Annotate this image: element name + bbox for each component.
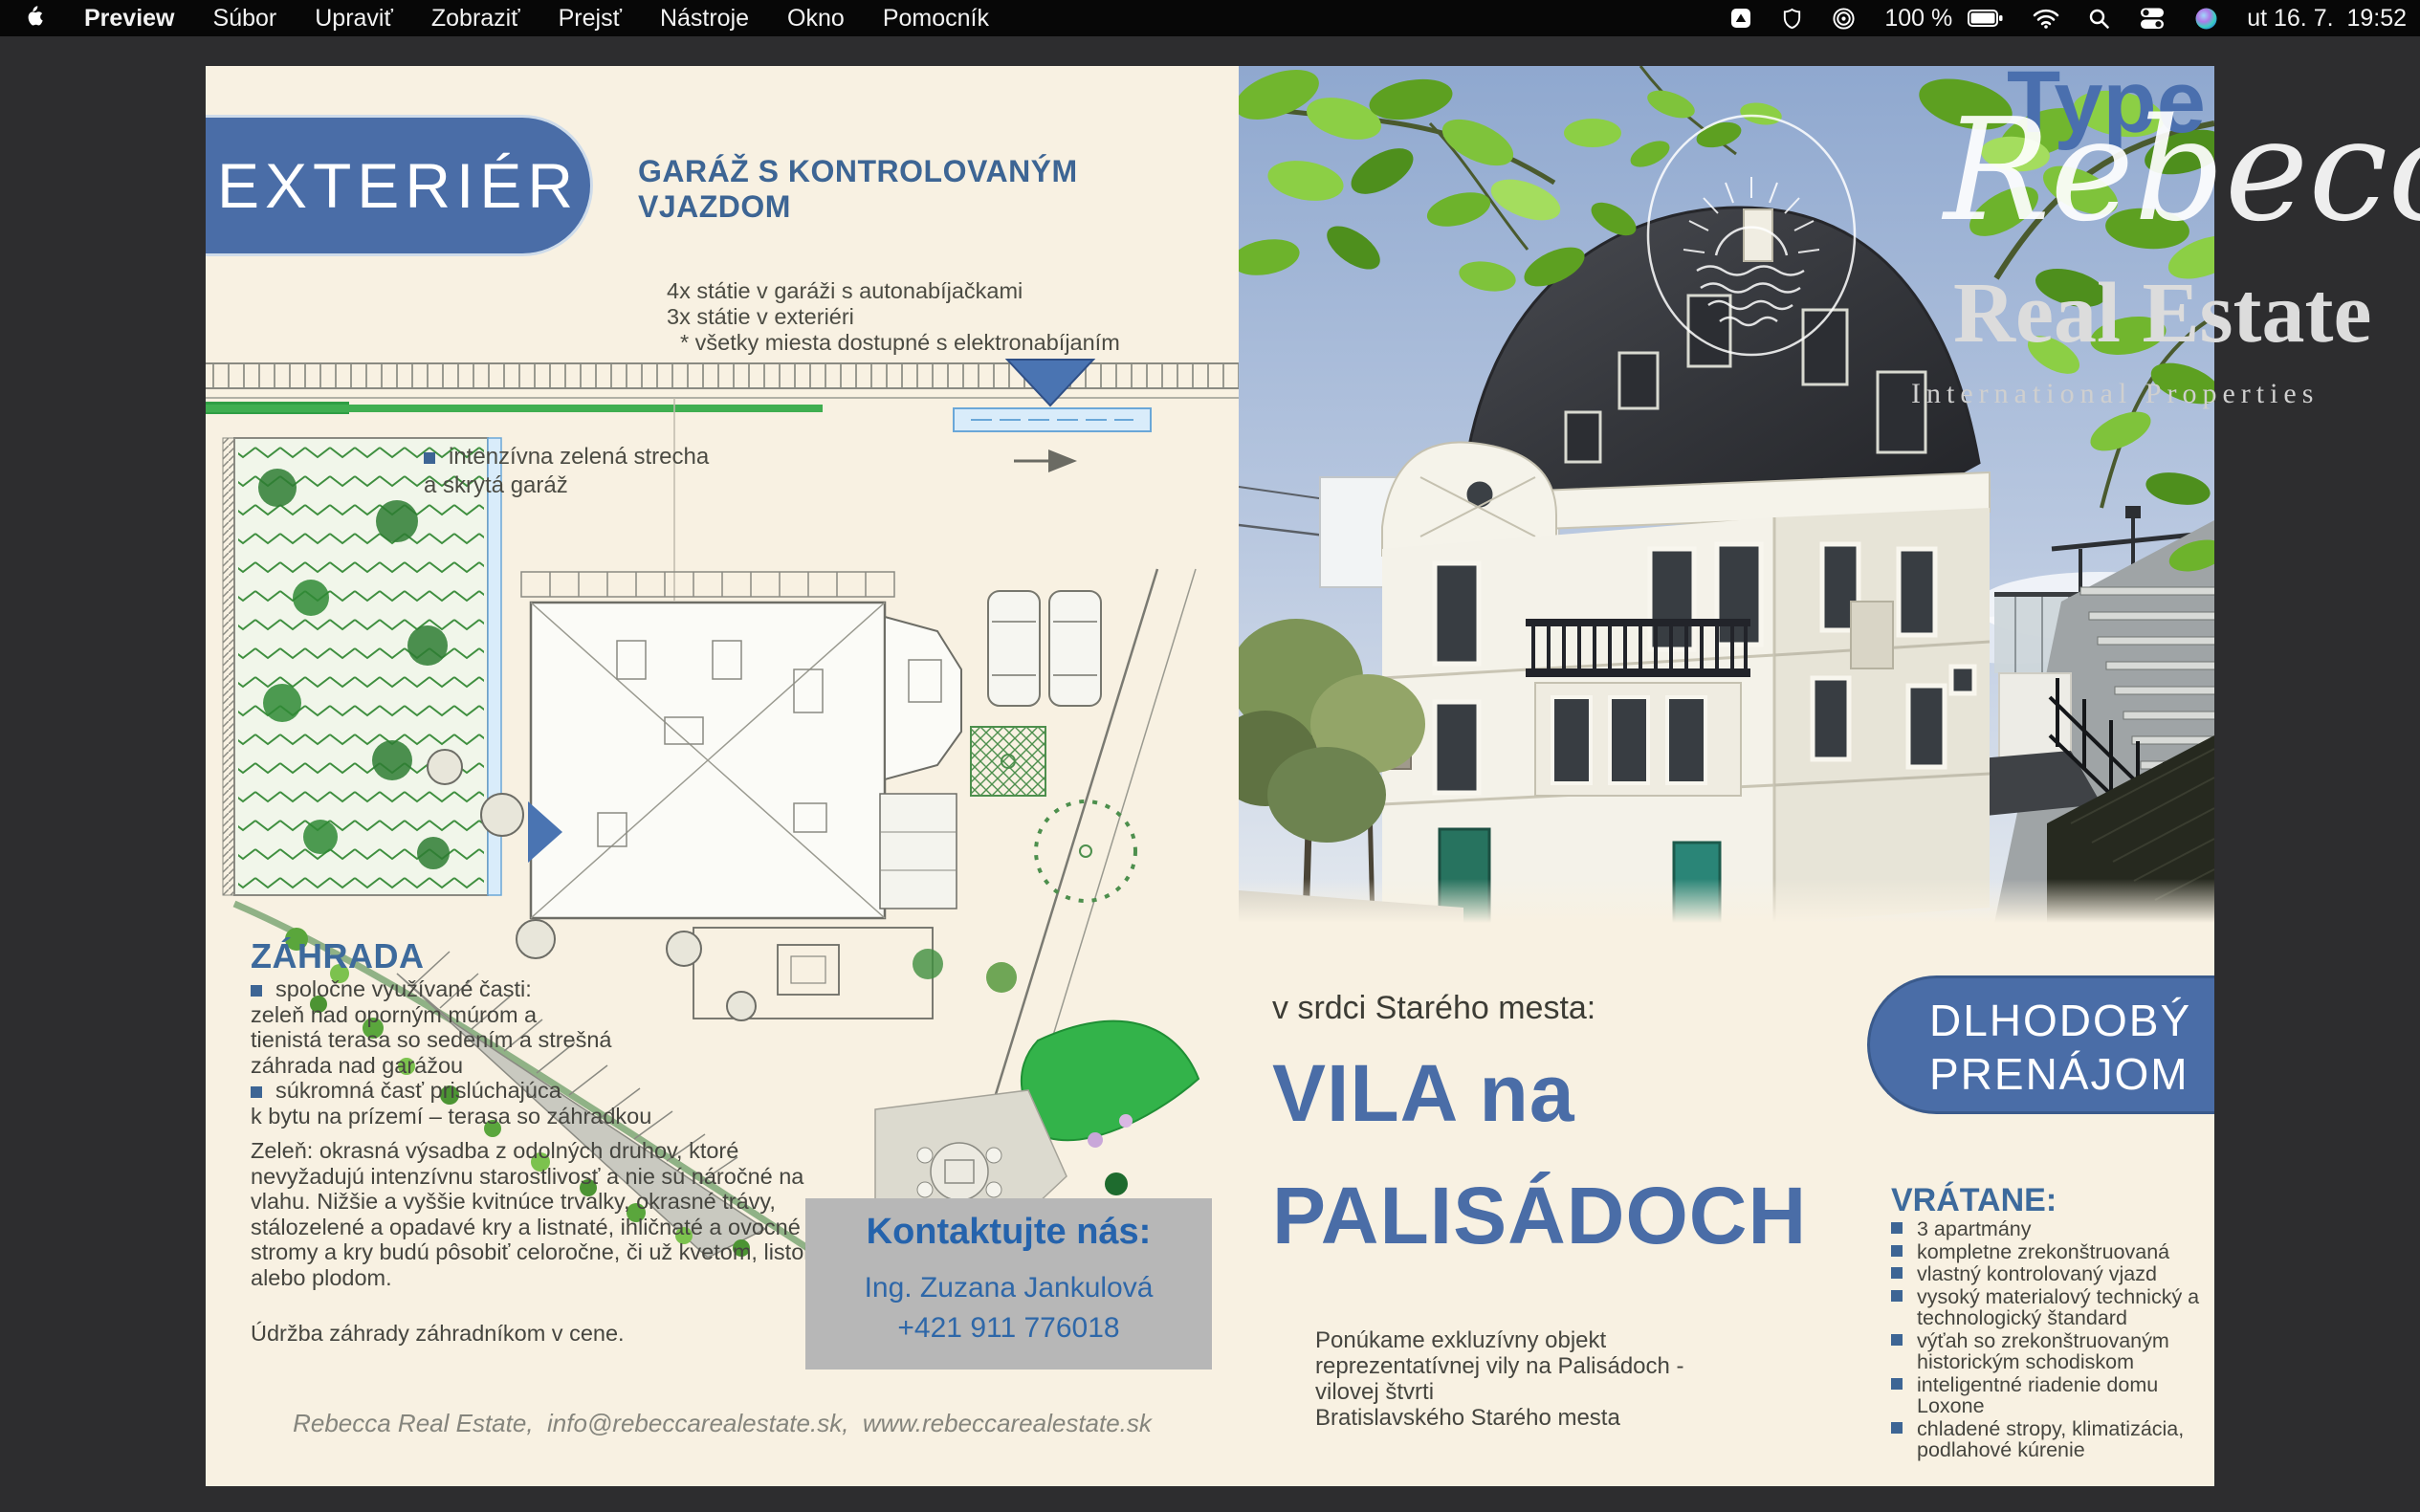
garden-line: spoločne využívané časti: — [275, 976, 532, 1001]
menu-item-zobrazit[interactable]: Zobraziť — [431, 5, 520, 33]
square-bullet-icon — [1891, 1222, 1903, 1234]
section-badge-label: EXTERIÉR — [217, 149, 579, 222]
airplay-circles-icon[interactable] — [1832, 7, 1856, 31]
garden-heading: ZÁHRADA — [251, 936, 424, 976]
plan-green-roof-garden — [223, 438, 501, 895]
plan-trellis — [971, 727, 1045, 796]
plan-building-footprint — [521, 572, 961, 1019]
roof-note: intenzívna zelená strecha a skrytá garáž — [424, 443, 709, 500]
shield-icon[interactable] — [1781, 7, 1803, 31]
plan-parking — [988, 591, 1101, 706]
garden-line: súkromná časť prislúchajúca — [275, 1078, 561, 1103]
square-bullet-icon — [1891, 1290, 1903, 1302]
list-item: vlastný kontrolovaný vjazd — [1891, 1263, 2221, 1285]
square-bullet-icon — [1891, 1267, 1903, 1279]
contact-box: Kontaktujte nás: Ing. Zuzana Jankulová +… — [805, 1198, 1212, 1370]
battery-percent-label: 100 % — [1884, 5, 1952, 33]
property-title: VILA na PALISÁDOCH — [1272, 1032, 1807, 1277]
menu-bar: Preview Súbor Upraviť Zobraziť Prejsť Ná… — [0, 0, 2420, 36]
property-description: Ponúkame exkluzívny objekt reprezentatív… — [1315, 1327, 1684, 1431]
battery-icon[interactable] — [1968, 9, 2004, 28]
roof-note-line2: a skrytá garáž — [424, 471, 709, 500]
square-bullet-icon — [424, 452, 435, 464]
list-item: 3 apartmány — [1891, 1218, 2221, 1240]
menu-item-app[interactable]: Preview — [84, 5, 175, 33]
included-list: 3 apartmány kompletne zrekonštruovaná vl… — [1891, 1218, 2221, 1462]
wifi-icon[interactable] — [2033, 8, 2059, 29]
footer-contacts: Rebecca Real Estate, info@rebeccarealest… — [206, 1409, 1239, 1438]
menu-item-subor[interactable]: Súbor — [213, 5, 277, 33]
section-badge-exterier: EXTERIÉR — [206, 115, 593, 256]
list-item: inteligentné riadenie domu Loxone — [1891, 1374, 2221, 1417]
property-title-line1: VILA na — [1272, 1032, 1807, 1154]
garage-list: 4x státie v garáži s autonabíjačkami 3x … — [667, 278, 1120, 356]
contact-heading: Kontaktujte nás: — [805, 1212, 1212, 1253]
greenery-paragraph: Zeleň: okrasná výsadba z odolných druhov… — [251, 1138, 825, 1290]
garden-line: tienistá terasa so sedením a strešná — [251, 1027, 786, 1053]
menu-item-nastroje[interactable]: Nástroje — [660, 5, 749, 33]
location-intro: v srdci Starého mesta: — [1272, 990, 1595, 1027]
apple-menu-icon[interactable] — [25, 4, 46, 33]
spotlight-search-icon[interactable] — [2088, 8, 2110, 30]
description-line: reprezentatívnej vily na Palisádoch - — [1315, 1353, 1684, 1379]
menu-bar-status: 100 % — [1729, 0, 2407, 36]
garden-line: záhrada nad garážou — [251, 1053, 786, 1079]
offer-badge-line1: DLHODOBÝ — [1929, 994, 2214, 1047]
garage-list-item: 4x státie v garáži s autonabíjačkami — [667, 278, 1120, 304]
garden-line: zeleň nad oporným múrom a — [251, 1002, 786, 1028]
menubar-clock[interactable]: ut 16. 7. 19:52 — [2247, 5, 2407, 33]
square-bullet-icon — [1891, 1422, 1903, 1434]
square-bullet-icon — [251, 1086, 262, 1098]
menu-item-upravit[interactable]: Upraviť — [315, 5, 393, 33]
square-bullet-icon — [251, 985, 262, 997]
garden-text: spoločne využívané časti: zeleň nad opor… — [251, 976, 786, 1129]
property-title-line2: PALISÁDOCH — [1272, 1154, 1807, 1277]
garage-heading: GARÁŽ S KONTROLOVANÝM VJAZDOM — [638, 154, 1078, 225]
offer-badge-line2: PRENÁJOM — [1929, 1047, 2214, 1101]
control-center-icon[interactable] — [2139, 6, 2166, 31]
list-item: výťah so zrekonštruovaným historickým sc… — [1891, 1330, 2221, 1373]
garden-line: k bytu na prízemí – terasa so záhradkou — [251, 1104, 786, 1129]
square-bullet-icon — [1891, 1245, 1903, 1257]
description-line: Ponúkame exkluzívny objekt — [1315, 1327, 1684, 1353]
square-bullet-icon — [1891, 1334, 1903, 1346]
roof-note-line1: intenzívna zelená strecha — [449, 444, 709, 470]
siri-icon[interactable] — [2194, 7, 2218, 31]
plan-lawn — [1022, 1021, 1199, 1141]
maintenance-note: Údržba záhrady záhradníkom v cene. — [251, 1321, 625, 1347]
contact-name: Ing. Zuzana Jankulová — [805, 1272, 1212, 1304]
list-item: kompletne zrekonštruovaná — [1891, 1241, 2221, 1263]
offer-badge: DLHODOBÝ PRENÁJOM — [1867, 975, 2214, 1114]
description-line: Bratislavského Starého mesta — [1315, 1405, 1684, 1431]
garage-heading-line1: GARÁŽ S KONTROLOVANÝM — [638, 154, 1078, 189]
description-line: vilovej štvrti — [1315, 1379, 1684, 1405]
document-page: EXTERIÉR GARÁŽ S KONTROLOVANÝM VJAZDOM 4… — [206, 66, 2214, 1486]
contact-phone: +421 911 776018 — [805, 1312, 1212, 1345]
list-item: chladené stropy, klimatizácia, podlahové… — [1891, 1418, 2221, 1461]
villa-photo — [1239, 66, 2214, 923]
menu-item-okno[interactable]: Okno — [787, 5, 845, 33]
menu-item-pomocnik[interactable]: Pomocník — [883, 5, 989, 33]
menubar-app-square-icon[interactable] — [1729, 7, 1752, 30]
list-item: vysoký materialový technický a technolog… — [1891, 1286, 2221, 1329]
menu-bar-left: Preview Súbor Upraviť Zobraziť Prejsť Ná… — [0, 4, 989, 33]
included-heading: VRÁTANE: — [1891, 1182, 2057, 1219]
garage-heading-line2: VJAZDOM — [638, 189, 1078, 225]
garage-list-item: 3x státie v exteriéri — [667, 304, 1120, 330]
menu-item-prejst[interactable]: Prejsť — [559, 5, 622, 33]
square-bullet-icon — [1891, 1378, 1903, 1390]
garage-list-item: * všetky miesta dostupné s elektronabíja… — [680, 330, 1120, 356]
